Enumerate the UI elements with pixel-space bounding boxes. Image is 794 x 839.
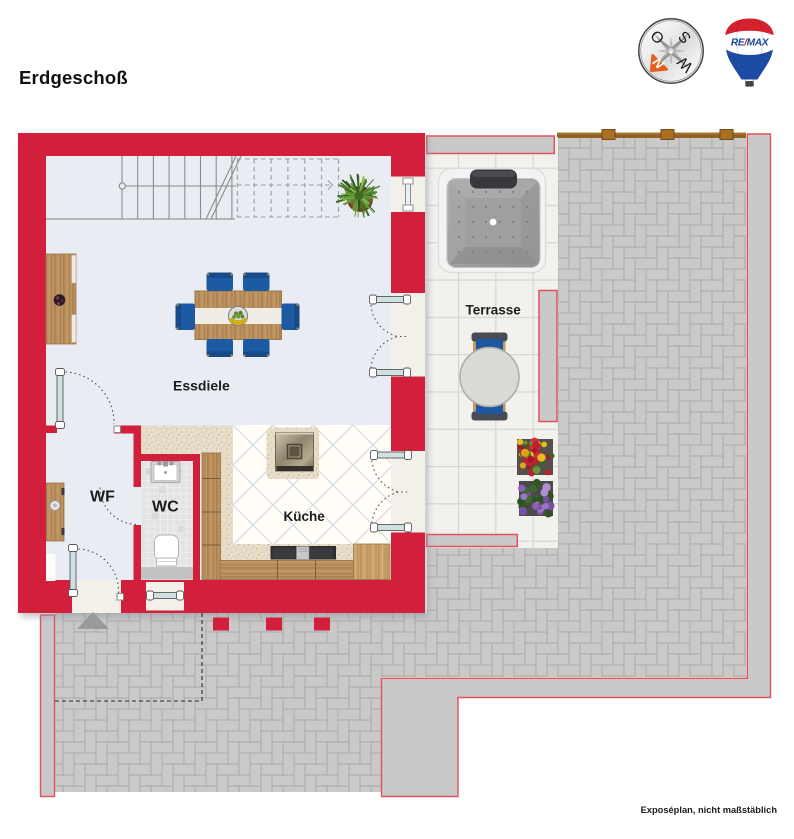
svg-text:Exposéplan, nicht maßstäblich: Exposéplan, nicht maßstäblich xyxy=(641,805,778,815)
svg-text:RE/MAX: RE/MAX xyxy=(731,38,770,49)
svg-text:WF: WF xyxy=(90,489,115,506)
svg-text:Erdgeschoß: Erdgeschoß xyxy=(19,67,128,88)
svg-text:Essdiele: Essdiele xyxy=(173,378,230,394)
svg-text:Terrasse: Terrasse xyxy=(466,303,522,318)
svg-text:Küche: Küche xyxy=(284,509,326,524)
svg-text:WC: WC xyxy=(152,499,179,516)
